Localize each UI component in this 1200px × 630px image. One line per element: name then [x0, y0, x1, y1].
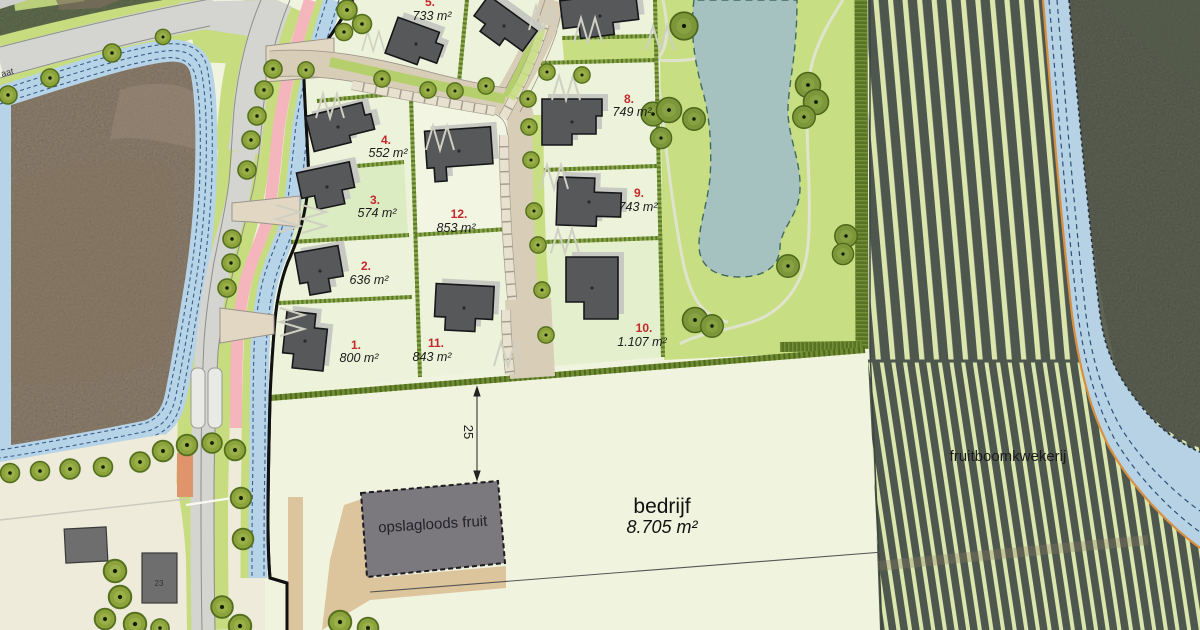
svg-text:552 m²: 552 m²	[369, 146, 409, 160]
svg-text:25: 25	[461, 425, 476, 439]
svg-text:800 m²: 800 m²	[340, 351, 380, 365]
svg-text:749 m²: 749 m²	[613, 105, 653, 119]
svg-text:11.: 11.	[428, 336, 444, 350]
svg-text:853 m²: 853 m²	[437, 221, 477, 235]
svg-text:23: 23	[155, 579, 164, 588]
svg-text:743 m²: 743 m²	[619, 200, 659, 214]
svg-text:12.: 12.	[451, 207, 468, 221]
svg-text:1.: 1.	[351, 338, 361, 352]
svg-text:5.: 5.	[425, 0, 435, 9]
svg-text:636 m²: 636 m²	[350, 273, 390, 287]
svg-text:10.: 10.	[636, 321, 653, 335]
svg-text:2.: 2.	[361, 259, 371, 273]
svg-text:8.705 m²: 8.705 m²	[626, 517, 698, 537]
svg-text:843 m²: 843 m²	[413, 350, 453, 364]
svg-text:8.: 8.	[624, 92, 634, 106]
svg-text:4.: 4.	[381, 133, 391, 147]
svg-text:3.: 3.	[370, 193, 380, 207]
svg-text:bedrijf: bedrijf	[633, 495, 690, 518]
svg-text:fruitboomkwekerij: fruitboomkwekerij	[950, 448, 1067, 465]
svg-text:1.107 m²: 1.107 m²	[617, 335, 667, 349]
svg-text:574 m²: 574 m²	[358, 206, 398, 220]
svg-text:9.: 9.	[634, 186, 644, 200]
svg-text:733 m²: 733 m²	[413, 9, 453, 23]
